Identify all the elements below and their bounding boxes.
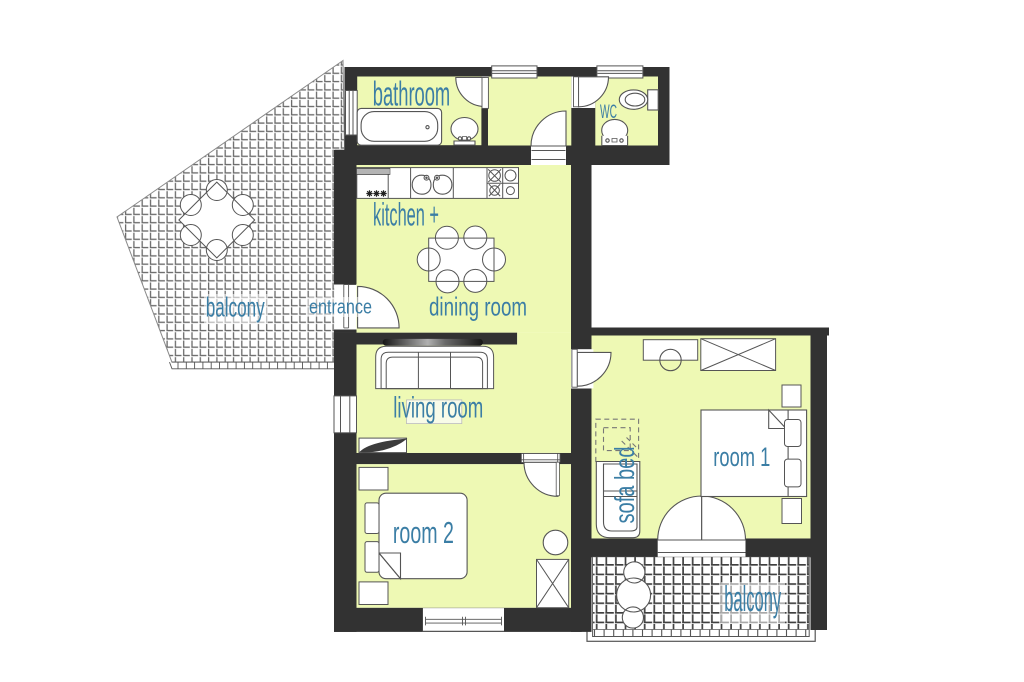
svg-text:balcony: balcony bbox=[206, 292, 265, 323]
svg-text:bathroom: bathroom bbox=[373, 75, 450, 113]
svg-text:room 2: room 2 bbox=[393, 515, 454, 550]
svg-text:WC: WC bbox=[600, 102, 617, 123]
svg-text:sofa bed: sofa bed bbox=[609, 447, 640, 524]
svg-text:room 1: room 1 bbox=[713, 442, 770, 472]
svg-text:balcony: balcony bbox=[724, 578, 781, 619]
svg-text:entrance: entrance bbox=[309, 297, 372, 319]
svg-text:living room: living room bbox=[393, 392, 483, 425]
svg-text:dining room: dining room bbox=[429, 292, 527, 322]
svg-text:kitchen +: kitchen + bbox=[373, 197, 439, 233]
